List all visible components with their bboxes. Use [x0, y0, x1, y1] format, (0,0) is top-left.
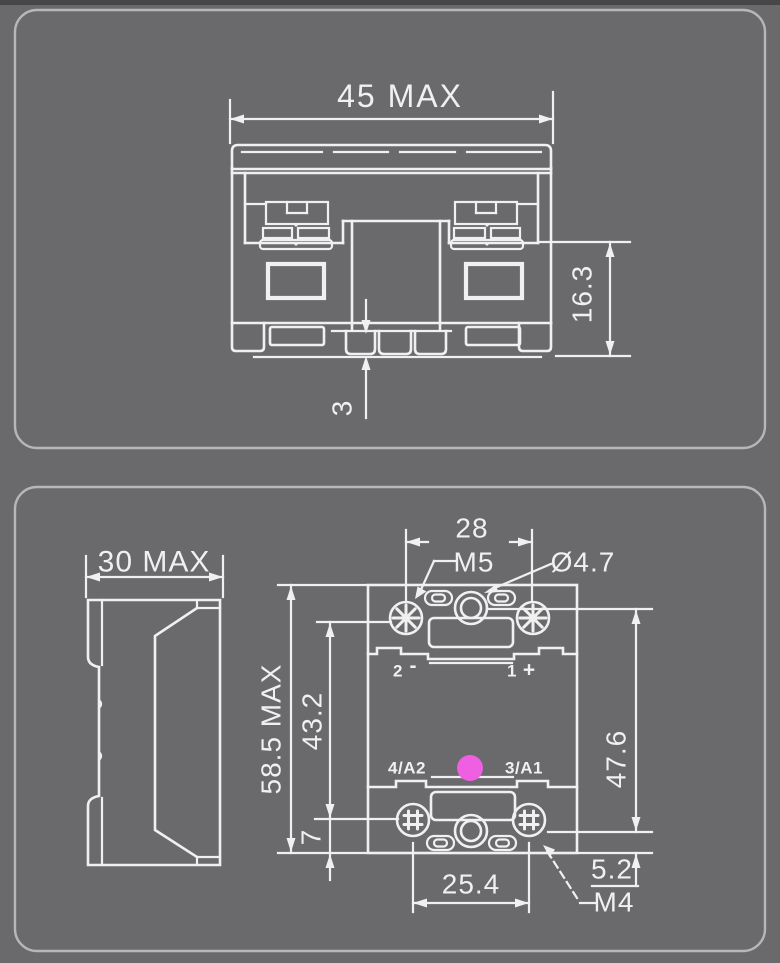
outline-drawing-svg: 45 MAX	[0, 0, 780, 963]
drawing-page: 45 MAX	[0, 0, 780, 963]
dim-3-label: 3	[327, 400, 358, 417]
dim-254-label: 25.4	[442, 869, 501, 900]
dim-28-label: 28	[455, 513, 488, 544]
dim-7-label: 7	[296, 829, 327, 846]
top-edge-strip	[0, 0, 780, 5]
dim-163-label: 16.3	[567, 265, 598, 324]
dim-45max-label: 45 MAX	[337, 78, 463, 114]
dim-476-label: 47.6	[601, 730, 632, 789]
terminal-1-polarity: +	[523, 659, 535, 682]
dim-52-label: 5.2	[591, 854, 633, 885]
dim-30max-label: 30 MAX	[98, 546, 211, 579]
terminal-screw-top-left-icon	[390, 602, 422, 634]
terminal-screw-top-right-icon	[517, 602, 549, 634]
terminal-2-label: 2	[393, 662, 403, 681]
m5-label: M5	[454, 547, 495, 578]
dia-47-label: Ø4.7	[551, 547, 616, 578]
terminal-2-polarity: -	[410, 655, 417, 678]
dim-432-label: 43.2	[297, 692, 328, 751]
terminal-3a1-label: 3/A1	[505, 759, 543, 778]
m4-label: M4	[594, 887, 635, 918]
terminal-4a2-label: 4/A2	[388, 759, 426, 778]
terminal-1-label: 1	[507, 662, 517, 681]
led-indicator	[457, 755, 483, 781]
dim-585max-label: 58.5 MAX	[256, 664, 287, 795]
